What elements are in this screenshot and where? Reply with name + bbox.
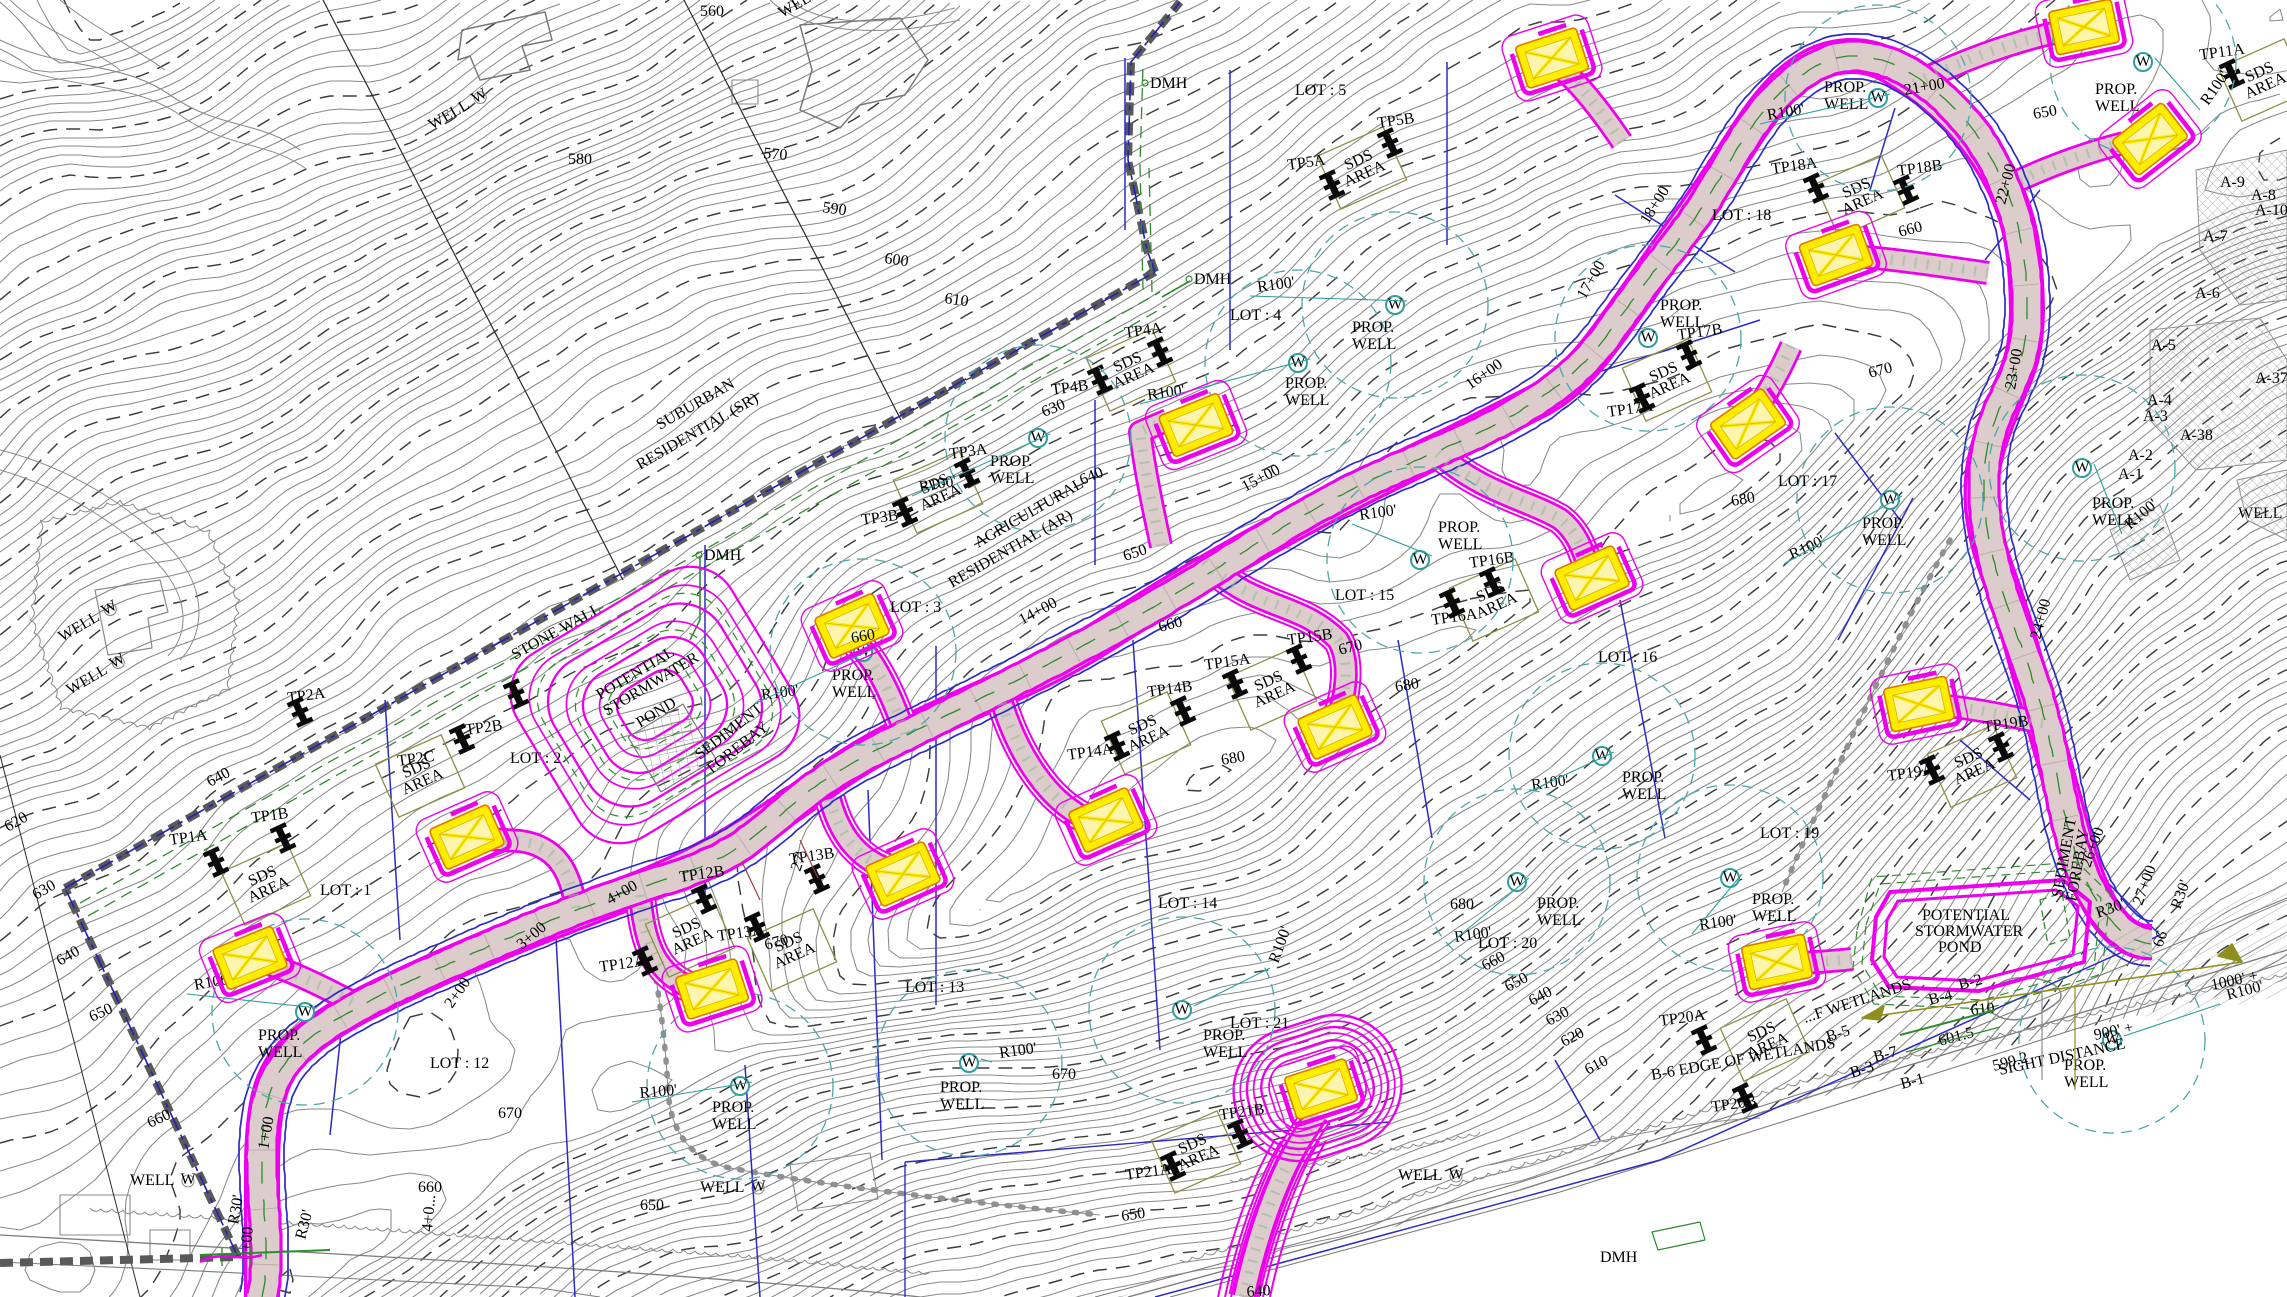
svg-text:WELL: WELL	[2064, 1074, 2108, 1091]
svg-text:LOT : 15: LOT : 15	[1335, 587, 1394, 604]
svg-text:PROP.: PROP.	[258, 1027, 300, 1044]
svg-text:PROP.: PROP.	[2095, 81, 2137, 98]
svg-text:LOT : 21: LOT : 21	[1230, 1015, 1289, 1032]
svg-text:PROP.: PROP.	[1622, 769, 1664, 786]
svg-text:PROP.: PROP.	[1660, 297, 1702, 314]
svg-text:WELL: WELL	[1203, 1044, 1247, 1061]
svg-text:LOT : 3: LOT : 3	[890, 599, 941, 616]
svg-text:LOT : 18: LOT : 18	[1712, 207, 1771, 224]
svg-text:POND: POND	[1938, 939, 1982, 956]
svg-text:R100': R100'	[639, 1082, 678, 1102]
svg-text:590: 590	[821, 199, 847, 219]
svg-text:PROP.: PROP.	[2092, 495, 2134, 512]
svg-text:WELL: WELL	[258, 1044, 302, 1061]
svg-text:WELL: WELL	[940, 1096, 984, 1113]
svg-text:A-37: A-37	[2255, 370, 2287, 387]
svg-text:670: 670	[1052, 1066, 1076, 1083]
svg-text:580: 580	[568, 151, 592, 168]
svg-text:A-1: A-1	[2118, 466, 2143, 483]
svg-text:A-7: A-7	[2203, 228, 2228, 245]
svg-text:650: 650	[640, 1197, 664, 1214]
svg-text:PROP.: PROP.	[1824, 79, 1866, 96]
svg-text:W: W	[1387, 296, 1403, 313]
svg-text:A-3: A-3	[2143, 408, 2168, 425]
svg-text:W: W	[180, 1171, 196, 1188]
svg-text:WELL: WELL	[1285, 392, 1329, 409]
svg-text:LOT : 13: LOT : 13	[905, 979, 964, 996]
svg-text:A-38: A-38	[2180, 427, 2213, 444]
svg-text:WELL: WELL	[990, 470, 1034, 487]
svg-text:0+00: 0+00	[237, 1226, 257, 1260]
svg-text:570: 570	[763, 145, 788, 164]
svg-text:WELL: WELL	[832, 684, 876, 701]
svg-text:W: W	[1448, 1166, 1464, 1183]
svg-text:PROP.: PROP.	[990, 453, 1032, 470]
svg-text:WELL: WELL	[2095, 98, 2139, 115]
svg-text:DMH: DMH	[1194, 271, 1232, 288]
svg-text:WELL: WELL	[1352, 336, 1396, 353]
svg-text:WELL: WELL	[1660, 314, 1704, 331]
svg-text:WELL: WELL	[1438, 536, 1482, 553]
svg-text:A-6: A-6	[2195, 285, 2220, 302]
svg-text:WELL: WELL	[1622, 786, 1666, 803]
svg-text:560: 560	[700, 3, 724, 20]
svg-text:LOT : 16: LOT : 16	[1598, 649, 1657, 666]
svg-text:LOT : 4: LOT : 4	[1230, 307, 1281, 324]
svg-text:A-2: A-2	[2128, 447, 2153, 464]
svg-text:STORMWATER: STORMWATER	[1915, 923, 2023, 940]
svg-text:DMH: DMH	[1600, 1249, 1638, 1266]
svg-text:PROP.: PROP.	[1285, 375, 1327, 392]
svg-text:LOT : 14: LOT : 14	[1158, 895, 1217, 912]
svg-text:LOT : 20: LOT : 20	[1478, 935, 1537, 952]
svg-text:4+0...: 4+0...	[419, 1194, 439, 1232]
svg-text:W: W	[2074, 459, 2090, 476]
svg-text:W: W	[1640, 329, 1656, 346]
svg-text:WELL: WELL	[130, 1172, 174, 1189]
svg-text:LOT : 2: LOT : 2	[510, 750, 561, 767]
svg-text:PROP.: PROP.	[1352, 319, 1394, 336]
svg-text:WELL: WELL	[1537, 912, 1581, 929]
svg-text:670: 670	[498, 1105, 522, 1122]
svg-text:PROP.: PROP.	[712, 1099, 754, 1116]
svg-text:W: W	[2135, 53, 2151, 70]
svg-text:600: 600	[883, 250, 909, 270]
svg-text:W: W	[297, 1003, 313, 1020]
svg-text:A-4: A-4	[2147, 392, 2172, 409]
svg-text:PROP.: PROP.	[1438, 519, 1480, 536]
svg-text:POTENTIAL: POTENTIAL	[1922, 907, 2010, 924]
svg-text:680: 680	[1450, 896, 1474, 913]
svg-text:PROP.: PROP.	[940, 1079, 982, 1096]
svg-text:LOT : 19: LOT : 19	[1760, 825, 1819, 842]
svg-text:PROP.: PROP.	[1537, 895, 1579, 912]
svg-text:A-9: A-9	[2220, 174, 2245, 191]
svg-text:660: 660	[418, 1179, 442, 1196]
svg-text:LOT : 12: LOT : 12	[430, 1055, 489, 1072]
svg-text:W: W	[1174, 1001, 1190, 1018]
svg-text:DMH: DMH	[704, 547, 742, 564]
svg-text:A-5: A-5	[2151, 337, 2176, 354]
svg-text:LOT : 5: LOT : 5	[1295, 82, 1346, 99]
svg-text:LOT : 1: LOT : 1	[320, 882, 371, 899]
svg-text:610: 610	[943, 290, 969, 310]
svg-text:PROP.: PROP.	[1752, 891, 1794, 908]
svg-text:WELL: WELL	[712, 1116, 756, 1133]
svg-text:W: W	[1594, 747, 1610, 764]
svg-text:W: W	[732, 1077, 748, 1094]
svg-text:WELL: WELL	[700, 1179, 744, 1196]
svg-text:LOT : 17: LOT : 17	[1778, 473, 1837, 490]
svg-text:650: 650	[1120, 1205, 1146, 1225]
svg-text:W: W	[961, 1054, 977, 1071]
svg-text:WELL: WELL	[1862, 532, 1906, 549]
svg-text:WELL: WELL	[1398, 1167, 1442, 1184]
svg-text:PROP.: PROP.	[1862, 515, 1904, 532]
svg-text:W: W	[1722, 869, 1738, 886]
svg-text:640: 640	[1246, 1282, 1271, 1297]
svg-text:WELL: WELL	[1752, 908, 1796, 925]
svg-text:W: W	[1030, 429, 1046, 446]
svg-text:DMH: DMH	[1150, 75, 1188, 92]
svg-text:A-10: A-10	[2255, 202, 2287, 219]
